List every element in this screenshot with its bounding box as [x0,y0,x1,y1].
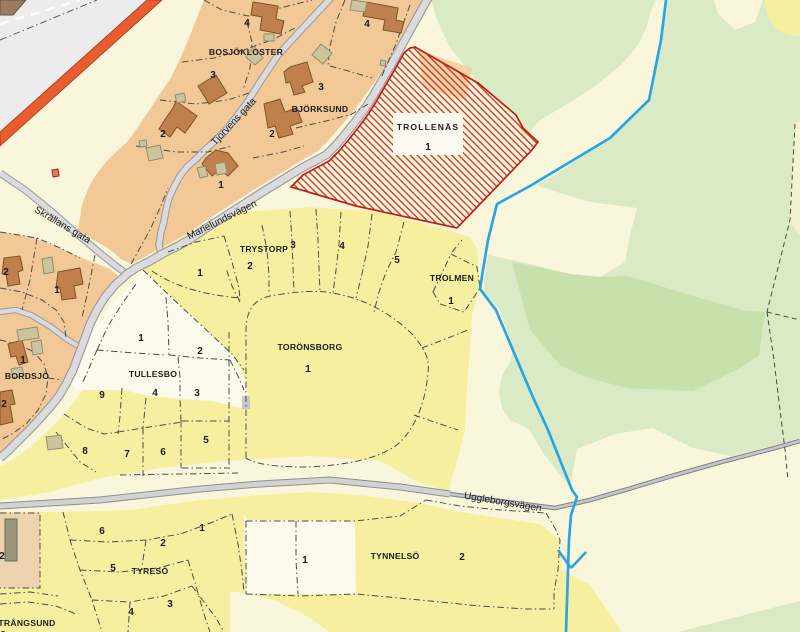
svg-text:TYRESÖ: TYRESÖ [132,566,169,576]
svg-text:7: 7 [124,449,130,460]
svg-text:TROLLENÄS: TROLLENÄS [397,122,459,132]
svg-text:4: 4 [128,607,134,618]
svg-text:1: 1 [305,364,311,375]
svg-text:1: 1 [448,296,454,307]
svg-text:2: 2 [160,129,166,140]
svg-text:5: 5 [394,255,400,266]
svg-text:4: 4 [339,241,345,252]
svg-text:1: 1 [138,333,144,344]
svg-text:6: 6 [99,526,105,537]
svg-text:TRYSTORP: TRYSTORP [240,244,288,254]
svg-text:3: 3 [167,599,173,610]
svg-text:1: 1 [302,555,308,566]
svg-text:BJÖRKSUND: BJÖRKSUND [292,104,349,114]
svg-text:BOSJÖKLOSTER: BOSJÖKLOSTER [209,47,284,57]
svg-text:3: 3 [194,388,200,399]
svg-text:3: 3 [290,240,296,251]
svg-text:8: 8 [82,446,88,457]
svg-text:2: 2 [0,551,5,562]
svg-text:2: 2 [1,399,7,410]
svg-text:2: 2 [160,538,166,549]
svg-text:BORDSJÖ: BORDSJÖ [5,371,49,381]
svg-text:2: 2 [3,267,9,278]
svg-text:TROLMEN: TROLMEN [430,273,474,283]
svg-text:1: 1 [218,180,224,191]
svg-text:4: 4 [244,18,250,29]
svg-text:1: 1 [20,355,26,366]
svg-text:4: 4 [152,388,158,399]
svg-text:TORÖNSBORG: TORÖNSBORG [278,342,343,352]
svg-text:1: 1 [425,142,431,153]
svg-text:2: 2 [197,346,203,357]
svg-text:TYNNELSÖ: TYNNELSÖ [371,551,420,561]
svg-text:1: 1 [199,523,205,534]
svg-text:6: 6 [160,447,166,458]
svg-text:2: 2 [247,261,253,272]
svg-text:5: 5 [110,563,116,574]
svg-text:2: 2 [459,552,465,563]
svg-text:2: 2 [269,129,275,140]
svg-text:5: 5 [203,435,209,446]
svg-text:TRÅNGSUND: TRÅNGSUND [0,618,56,628]
svg-text:3: 3 [318,82,324,93]
svg-text:9: 9 [99,390,105,401]
svg-text:3: 3 [210,70,216,81]
svg-text:1: 1 [54,285,60,296]
svg-text:4: 4 [364,19,370,30]
svg-text:TULLESBO: TULLESBO [129,369,177,379]
svg-text:1: 1 [197,268,203,279]
